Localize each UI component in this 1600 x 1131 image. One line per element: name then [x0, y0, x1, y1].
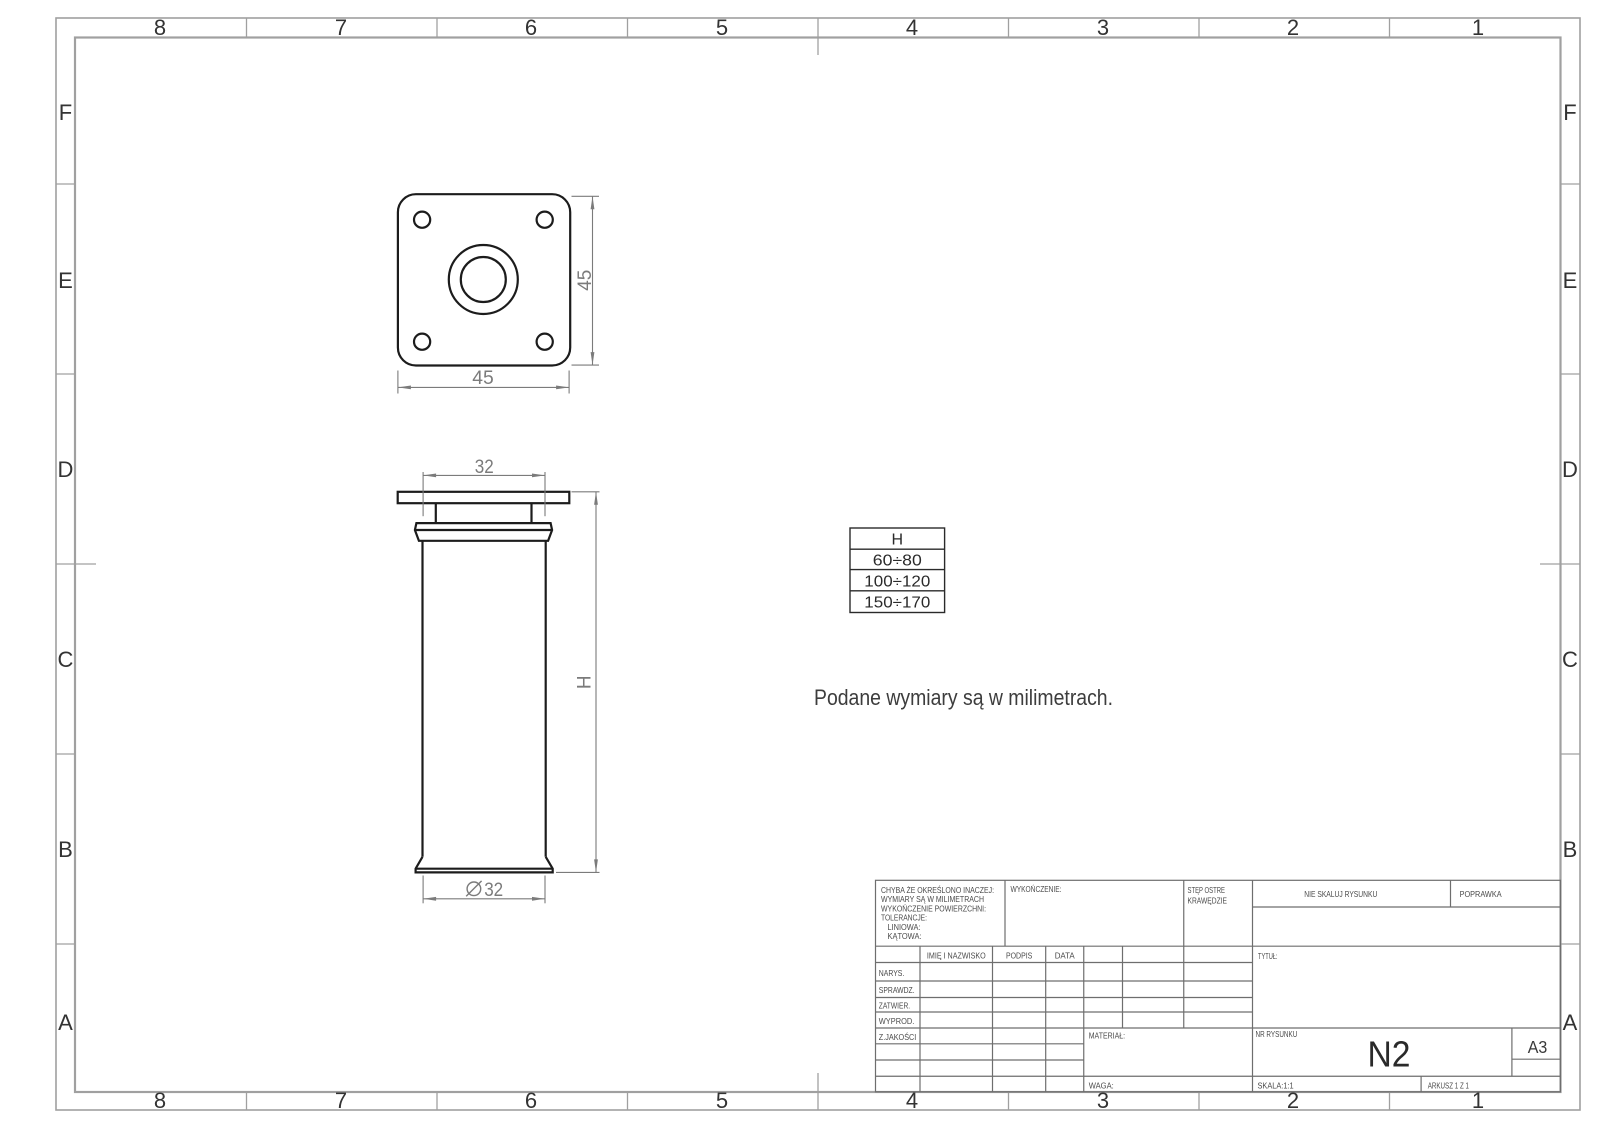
svg-text:D: D	[1562, 457, 1578, 482]
svg-text:IMIĘ I NAZWISKO: IMIĘ I NAZWISKO	[927, 951, 986, 961]
svg-text:A: A	[1563, 1010, 1578, 1035]
svg-text:5: 5	[716, 15, 728, 40]
svg-text:100÷120: 100÷120	[864, 574, 930, 591]
svg-text:POPRAWKA: POPRAWKA	[1460, 889, 1502, 899]
svg-text:C: C	[1562, 647, 1578, 672]
svg-text:4: 4	[906, 15, 918, 40]
svg-text:32: 32	[484, 880, 503, 901]
svg-text:C: C	[58, 647, 74, 672]
svg-text:A3: A3	[1528, 1037, 1548, 1057]
svg-text:6: 6	[525, 15, 537, 40]
svg-text:F: F	[59, 100, 72, 125]
svg-text:F: F	[1563, 100, 1576, 125]
svg-text:45: 45	[472, 368, 494, 389]
svg-text:45: 45	[575, 270, 596, 291]
svg-text:7: 7	[335, 15, 347, 40]
svg-text:NARYS.: NARYS.	[879, 968, 905, 978]
svg-text:STĘP OSTRE: STĘP OSTRE	[1188, 885, 1226, 895]
svg-text:WYPROD.: WYPROD.	[879, 1016, 915, 1026]
svg-text:SPRAWDZ.: SPRAWDZ.	[879, 985, 915, 995]
svg-text:6: 6	[525, 1088, 537, 1113]
svg-text:5: 5	[716, 1088, 728, 1113]
svg-text:Z.JAKOŚCI: Z.JAKOŚCI	[879, 1031, 917, 1042]
svg-text:3: 3	[1097, 15, 1109, 40]
svg-text:SKALA:1:1: SKALA:1:1	[1258, 1082, 1295, 1091]
svg-text:A: A	[58, 1010, 73, 1035]
svg-text:H: H	[575, 675, 596, 689]
svg-text:H: H	[892, 532, 904, 549]
svg-text:D: D	[58, 457, 74, 482]
svg-text:Podane wymiary są w milimetrac: Podane wymiary są w milimetrach.	[814, 685, 1113, 710]
svg-text:8: 8	[154, 1088, 166, 1113]
svg-text:32: 32	[475, 457, 494, 478]
svg-text:TYTUŁ:: TYTUŁ:	[1258, 951, 1278, 961]
svg-text:NR RYSUNKU: NR RYSUNKU	[1256, 1030, 1298, 1039]
svg-text:2: 2	[1287, 15, 1299, 40]
svg-text:WAGA:: WAGA:	[1089, 1081, 1114, 1091]
svg-text:B: B	[58, 837, 73, 862]
svg-text:8: 8	[154, 15, 166, 40]
svg-text:MATERIAŁ:: MATERIAŁ:	[1089, 1031, 1125, 1041]
svg-text:ARKUSZ 1 Z 1: ARKUSZ 1 Z 1	[1428, 1082, 1470, 1091]
svg-text:DATA: DATA	[1055, 951, 1075, 961]
svg-text:1: 1	[1472, 15, 1484, 40]
svg-text:60÷80: 60÷80	[873, 553, 922, 570]
svg-text:B: B	[1563, 837, 1578, 862]
svg-text:E: E	[1563, 268, 1578, 293]
svg-text:KRAWĘDZIE: KRAWĘDZIE	[1188, 896, 1228, 906]
svg-text:PODPIS: PODPIS	[1006, 951, 1033, 961]
svg-text:NIE SKALUJ RYSUNKU: NIE SKALUJ RYSUNKU	[1304, 889, 1377, 899]
svg-text:ZATWIER.: ZATWIER.	[879, 1001, 910, 1011]
svg-text:KĄTOWA:: KĄTOWA:	[888, 931, 922, 941]
svg-text:150÷170: 150÷170	[864, 595, 930, 612]
svg-text:E: E	[58, 268, 73, 293]
svg-text:N2: N2	[1368, 1034, 1411, 1075]
svg-text:7: 7	[335, 1088, 347, 1113]
svg-text:WYKOŃCZENIE:: WYKOŃCZENIE:	[1011, 884, 1062, 894]
